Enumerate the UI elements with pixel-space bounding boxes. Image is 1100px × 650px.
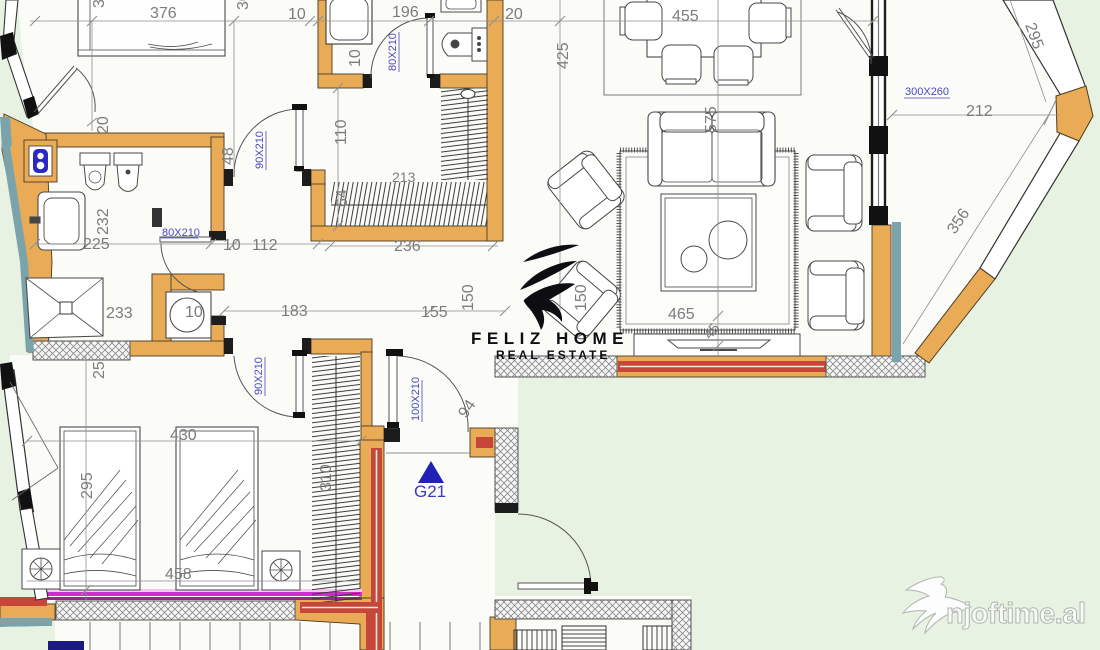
svg-text:90X210: 90X210 [254,131,266,169]
svg-text:465: 465 [668,306,695,323]
svg-text:80X210: 80X210 [387,33,399,71]
svg-text:425: 425 [555,42,572,69]
svg-text:10: 10 [185,304,203,321]
svg-text:FELIZ HOME: FELIZ HOME [471,329,629,348]
svg-text:REAL ESTATE: REAL ESTATE [496,348,610,362]
svg-text:455: 455 [672,8,699,25]
svg-text:80X210: 80X210 [162,227,200,239]
svg-text:30: 30 [91,0,108,8]
svg-text:196: 196 [392,4,419,21]
svg-text:183: 183 [281,303,308,320]
svg-text:225: 225 [83,236,110,253]
svg-text:10: 10 [223,237,241,254]
svg-text:20: 20 [95,116,112,134]
svg-text:25: 25 [91,361,108,379]
svg-text:212: 212 [966,103,993,120]
svg-text:10: 10 [288,6,306,23]
svg-text:20: 20 [505,6,523,23]
svg-text:112: 112 [252,237,278,254]
svg-text:110: 110 [333,119,350,145]
svg-text:150: 150 [573,284,590,311]
svg-text:155: 155 [421,304,448,321]
svg-text:150: 150 [460,284,477,311]
svg-text:G21: G21 [414,482,446,501]
svg-text:233: 233 [106,305,133,322]
svg-text:575: 575 [703,106,720,133]
svg-text:310: 310 [318,464,335,491]
svg-text:376: 376 [150,5,177,22]
svg-text:300X260: 300X260 [905,86,949,98]
svg-text:10: 10 [347,49,364,67]
svg-text:48: 48 [220,147,237,165]
svg-text:458: 458 [165,566,192,583]
svg-text:295: 295 [79,472,96,499]
svg-text:njoftime.al: njoftime.al [946,598,1086,630]
svg-text:213: 213 [392,169,416,185]
svg-text:64: 64 [334,189,351,207]
svg-text:30: 30 [235,0,252,10]
svg-text:232: 232 [95,208,112,235]
svg-text:236: 236 [394,238,421,255]
svg-text:430: 430 [170,427,197,444]
svg-text:90X210: 90X210 [253,357,265,395]
svg-text:100X210: 100X210 [410,377,422,421]
